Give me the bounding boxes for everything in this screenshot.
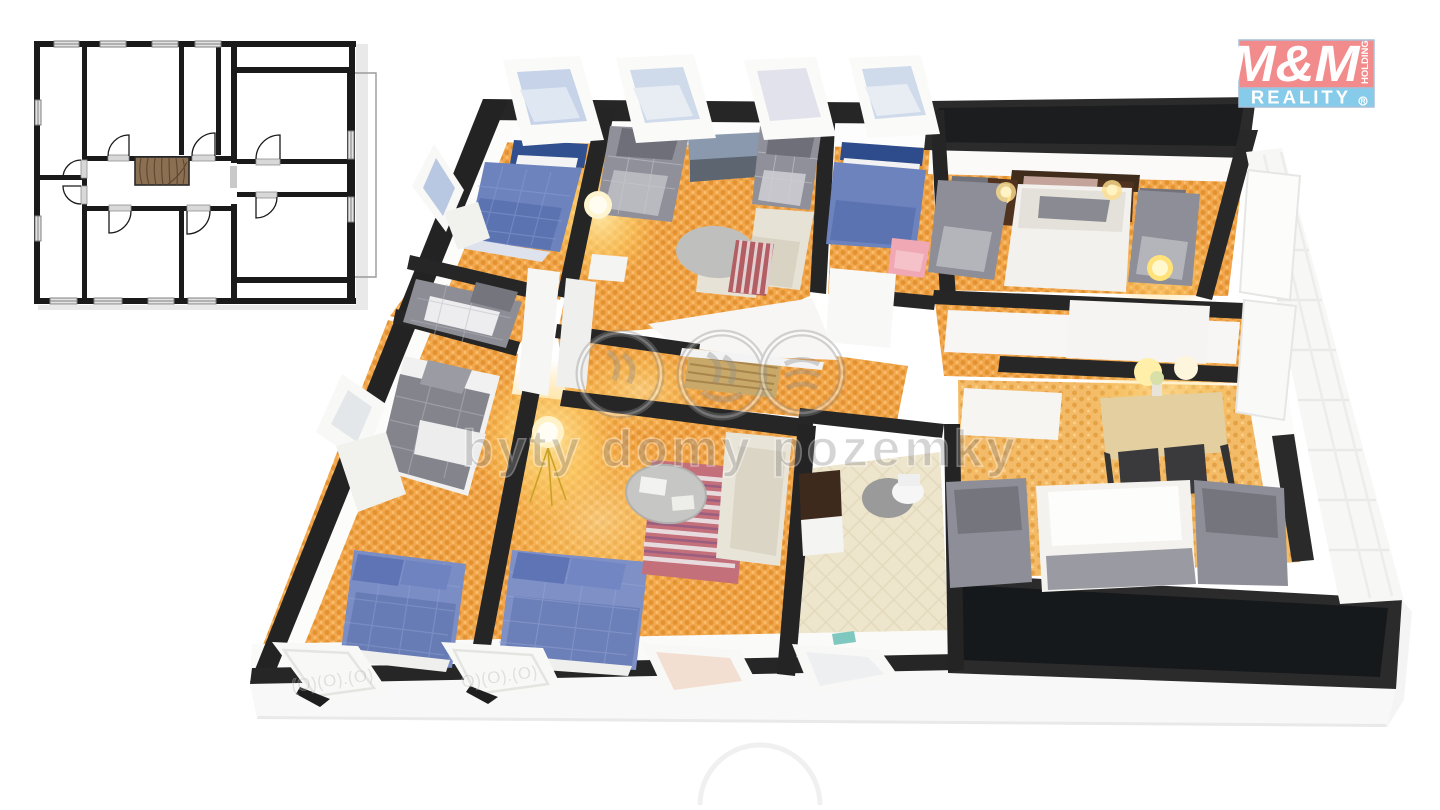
svg-text:byty domy pozemky: byty domy pozemky: [462, 420, 1019, 478]
svg-text:M&M: M&M: [1231, 37, 1361, 93]
svg-text:REALITY: REALITY: [1251, 87, 1351, 108]
svg-text:HOLDING: HOLDING: [1360, 40, 1371, 84]
svg-text:R: R: [1360, 99, 1365, 106]
